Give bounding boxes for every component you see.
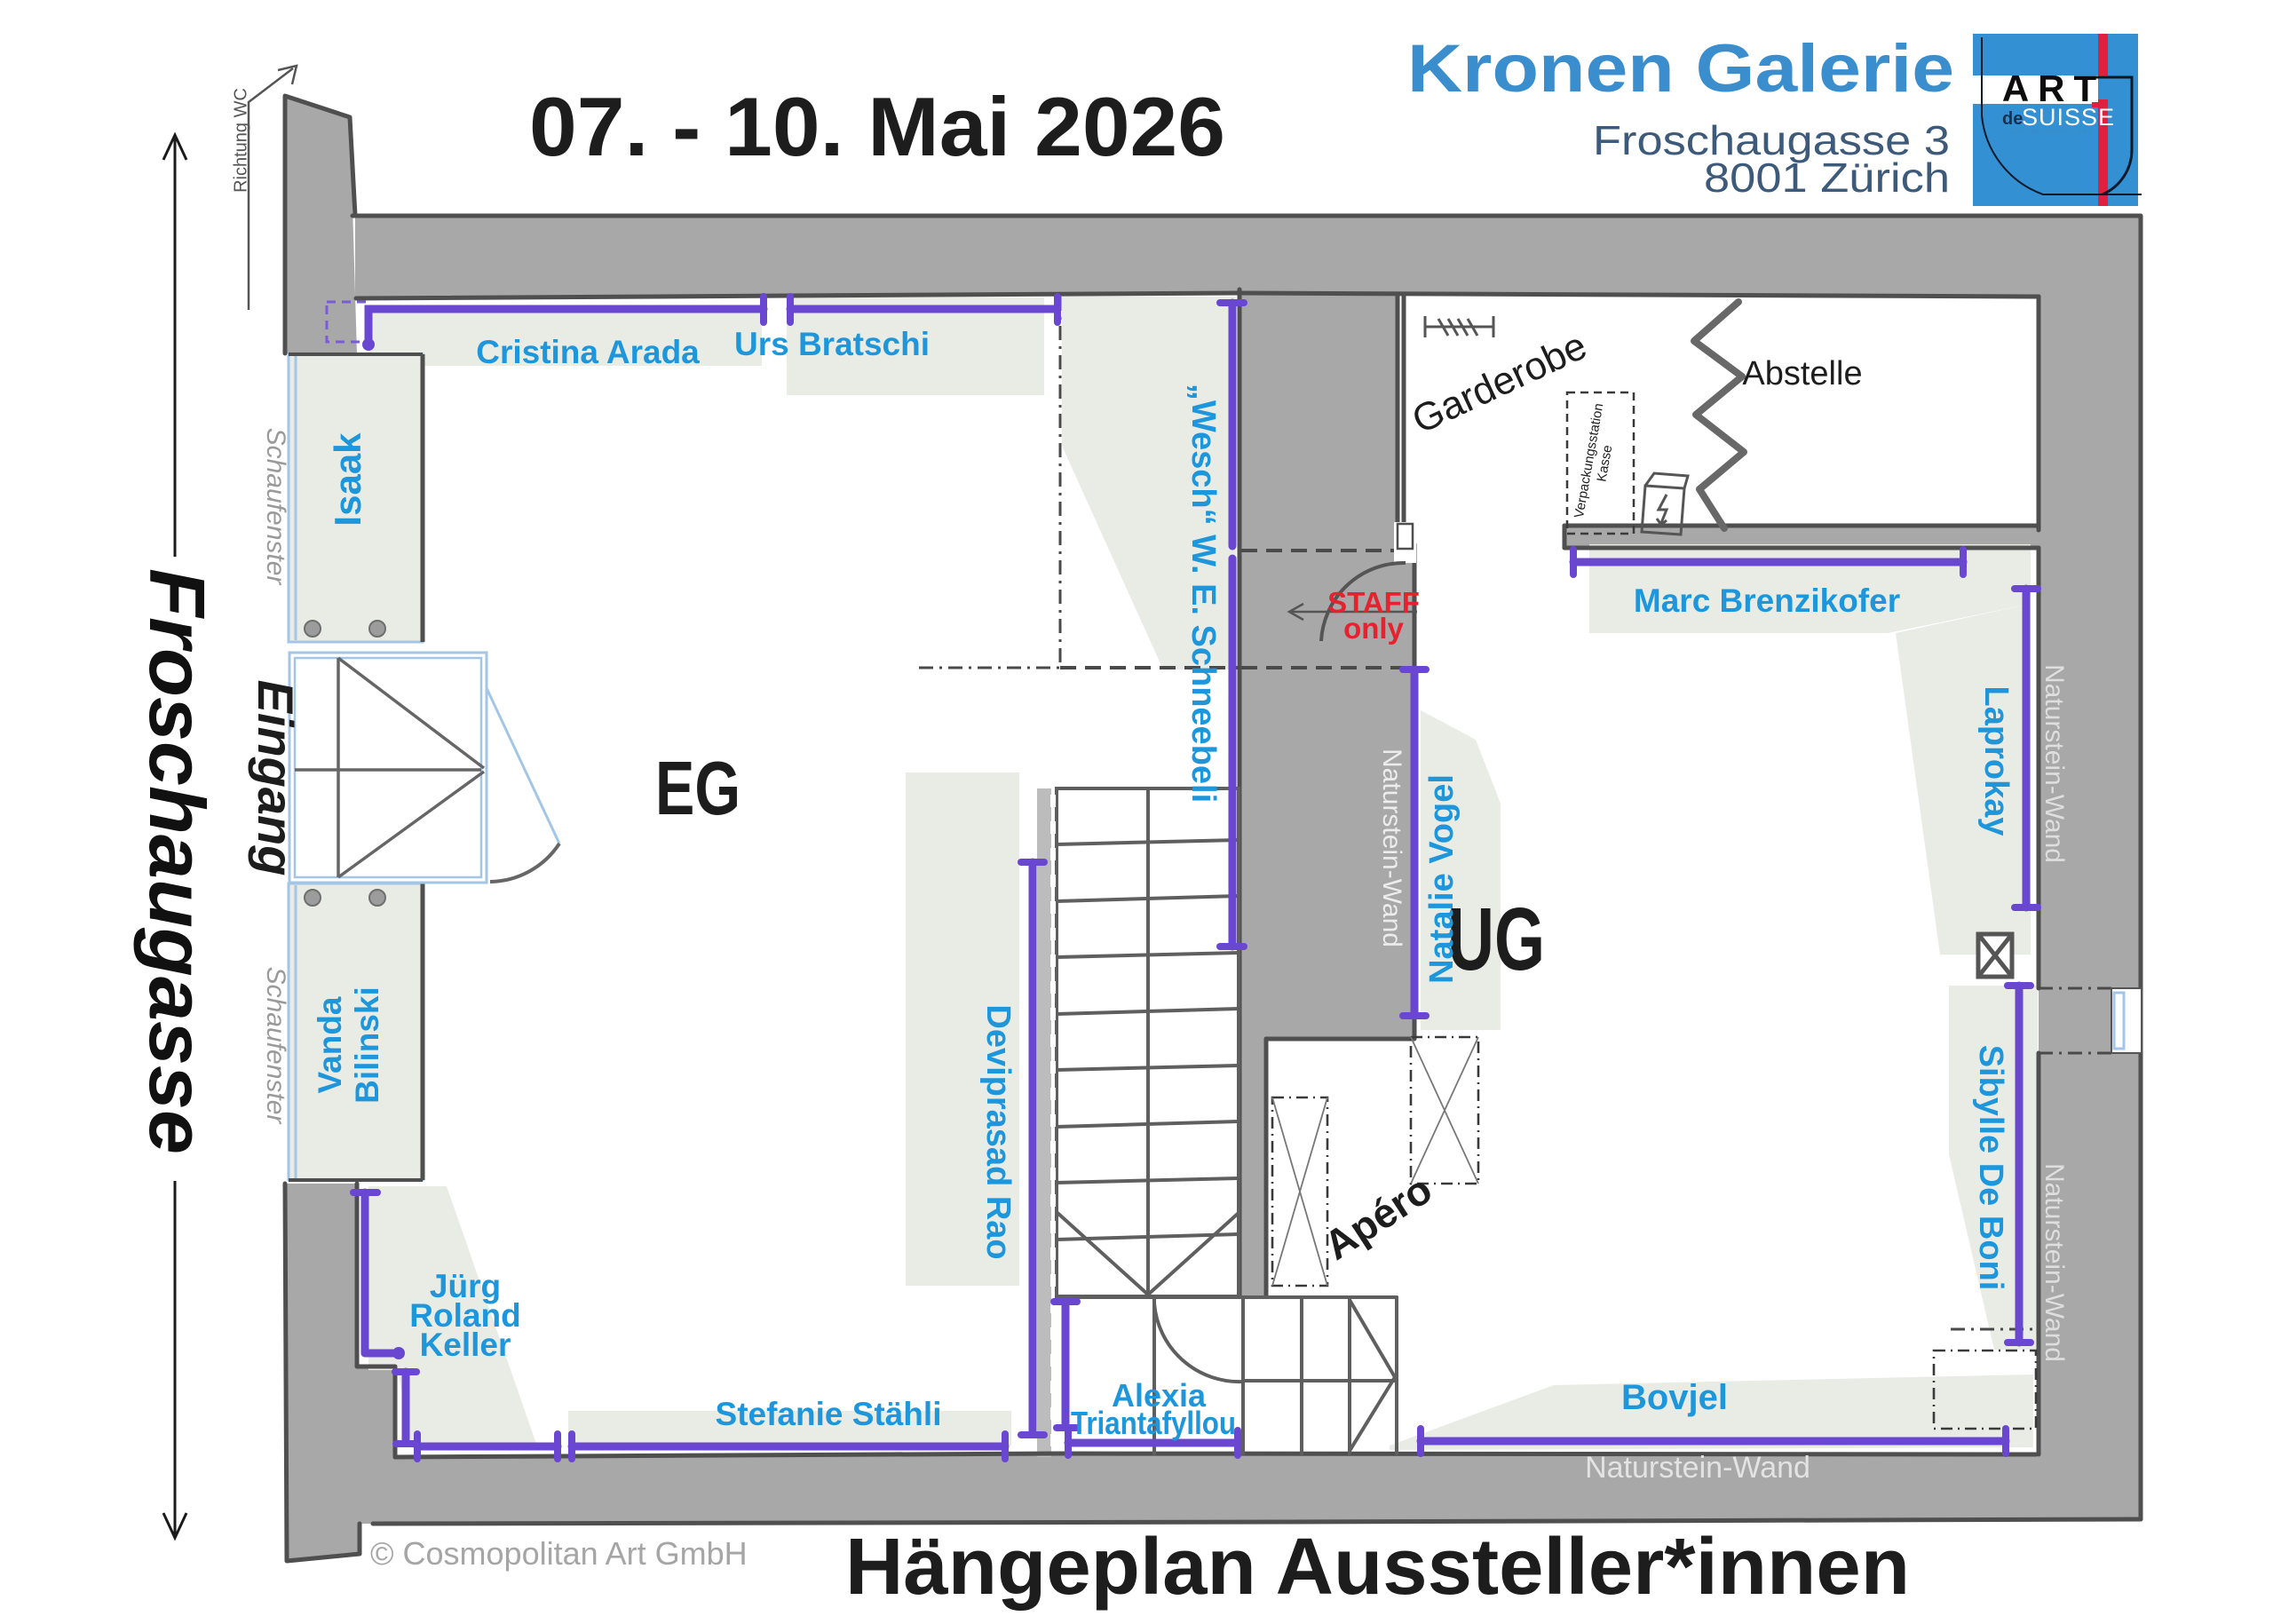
svg-text:Hängeplan Aussteller*innen: Hängeplan Aussteller*innen (845, 1523, 1910, 1612)
svg-text:Stefanie Stähli: Stefanie Stähli (716, 1396, 942, 1432)
svg-text:Keller: Keller (420, 1327, 511, 1363)
svg-text:© Cosmopolitan Art GmbH: © Cosmopolitan Art GmbH (370, 1535, 748, 1572)
svg-text:Cristina Arada: Cristina Arada (476, 334, 700, 370)
svg-text:Triantafyllou: Triantafyllou (1071, 1405, 1236, 1441)
svg-text:Marc Brenzikofer: Marc Brenzikofer (1634, 582, 1900, 619)
svg-text:07. - 10. Mai 2026: 07. - 10. Mai 2026 (529, 80, 1225, 173)
svg-text:Schaufenster: Schaufenster (261, 967, 290, 1125)
svg-text:Richtung WC: Richtung WC (231, 88, 250, 193)
svg-text:Eingang: Eingang (248, 680, 304, 876)
svg-text:Schaufenster: Schaufenster (261, 428, 290, 586)
svg-text:8001 Zürich: 8001 Zürich (1704, 154, 1950, 201)
svg-text:Bilinski: Bilinski (349, 986, 385, 1104)
svg-text:Commercialisation d'art: Commercialisation d'art (2009, 126, 2093, 135)
svg-text:only: only (1343, 612, 1404, 645)
svg-text:Vanda: Vanda (312, 996, 348, 1093)
svg-text:Laprokay: Laprokay (1977, 686, 2015, 836)
svg-text:Isaak: Isaak (327, 432, 368, 527)
svg-text:Sibylle De Boni: Sibylle De Boni (1972, 1045, 2009, 1291)
svg-text:„Wesch“ W. E. Schneebeli: „Wesch“ W. E. Schneebeli (1184, 384, 1222, 803)
svg-text:EG: EG (655, 747, 741, 831)
svg-text:Naturstein-Wand: Naturstein-Wand (1585, 1451, 1810, 1485)
svg-text:Natalie Vogel: Natalie Vogel (1423, 774, 1461, 984)
svg-text:UG: UG (1447, 890, 1545, 989)
svg-text:ART: ART (2002, 67, 2105, 109)
svg-text:Froschaugasse: Froschaugasse (133, 568, 221, 1154)
svg-text:Urs Bratschi: Urs Bratschi (734, 326, 930, 362)
svg-text:Naturstein-Wand: Naturstein-Wand (2039, 664, 2069, 863)
svg-text:Naturstein-Wand: Naturstein-Wand (2039, 1163, 2069, 1362)
svg-text:Kronen Galerie: Kronen Galerie (1407, 31, 1954, 107)
svg-text:Deviprasad Rao: Deviprasad Rao (979, 1004, 1017, 1259)
svg-text:Bovjel: Bovjel (1621, 1378, 1728, 1417)
svg-text:Naturstein-Wand: Naturstein-Wand (1377, 749, 1406, 947)
svg-text:Abstelle: Abstelle (1742, 355, 1862, 392)
